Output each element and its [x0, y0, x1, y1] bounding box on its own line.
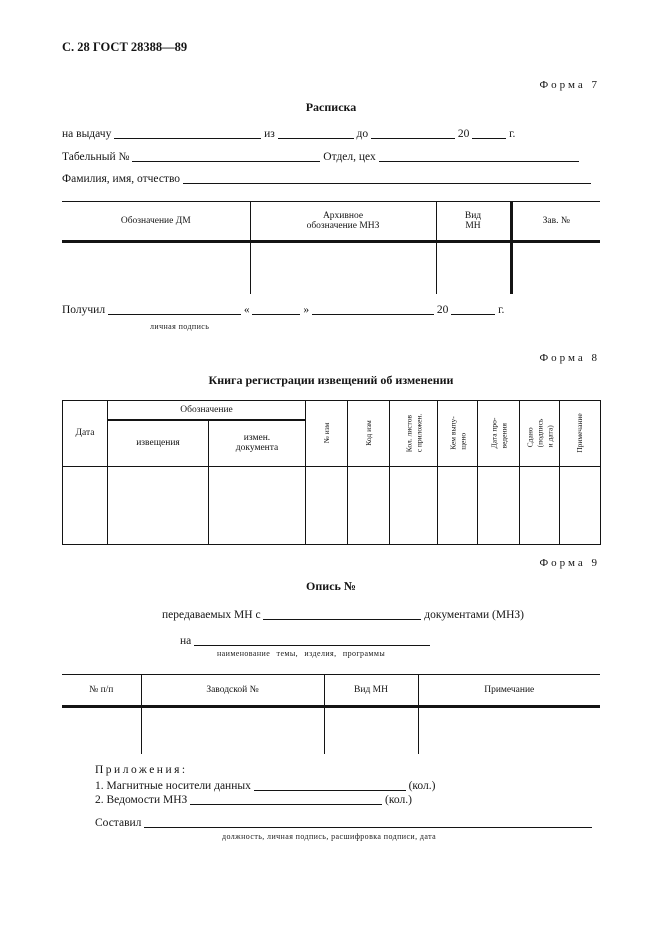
form9-transfer-line: передаваемых МН с документами (МНЗ) [162, 607, 600, 627]
empty-cell [324, 706, 418, 754]
form9-inventory-table: № п/п Заводской № Вид МН Примечание [62, 674, 600, 755]
empty-cell [511, 242, 600, 294]
page-content: С. 28 ГОСТ 28388—89 Форма 7 Расписка на … [62, 40, 600, 841]
issue-label: на выдачу [62, 128, 111, 140]
attachment-item-2: 2. Ведомости МНЗ (кол.) [95, 792, 600, 806]
col-header-date-done: Дата про- ведения [478, 400, 520, 466]
full-name-blank [183, 173, 591, 184]
received-year-prefix: 20 [437, 304, 449, 316]
transfer-suffix: документами (МНЗ) [424, 609, 524, 621]
issue-year-prefix: 20 [458, 128, 470, 140]
receipt-table-header-row: Обозначение ДМ Архивное обозначение МНЗ … [62, 202, 600, 242]
attachment-2-qty: (кол.) [385, 794, 412, 806]
col-header-archive-designation: Архивное обозначение МНЗ [250, 202, 436, 242]
col-header-change-code: Код изм [348, 400, 390, 466]
attachment-1-blank [254, 780, 406, 791]
empty-cell [436, 242, 511, 294]
col-header-date: Дата [63, 400, 108, 466]
form7-title: Расписка [62, 100, 600, 115]
form9-subject-line: на [180, 633, 600, 649]
form8-change-log-table: Дата Обозначение № изм Код изм Кол. лист… [62, 400, 601, 545]
change-log-empty-row [63, 466, 601, 544]
issue-year-blank [472, 128, 506, 139]
received-signature-blank [108, 304, 241, 315]
attachment-1-qty: (кол.) [409, 780, 436, 792]
col-header-designation-group: Обозначение [108, 400, 306, 420]
form7-label: Форма 7 [62, 79, 600, 91]
inventory-table-empty-row [62, 706, 600, 754]
received-label: Получил [62, 304, 105, 316]
received-year-blank [451, 304, 495, 315]
attachments-title: Приложения: [95, 764, 600, 778]
col-header-dm-designation: Обозначение ДМ [62, 202, 250, 242]
empty-cell [108, 466, 209, 544]
personnel-no-label: Табельный № [62, 151, 130, 163]
attachment-1-number: 1. [95, 780, 104, 792]
issue-to-label: до [357, 128, 369, 140]
attachment-1-text: Магнитные носители данных [107, 780, 251, 792]
attachment-item-1: 1. Магнитные носители данных (кол.) [95, 778, 600, 792]
subject-prefix: на [180, 635, 191, 647]
empty-cell [141, 706, 324, 754]
form7-issue-line: на выдачу из до 20 г. [62, 126, 600, 146]
form9-title: Опись № [62, 579, 600, 594]
empty-cell [390, 466, 438, 544]
col-header-change-no: № изм [306, 400, 348, 466]
attachment-2-blank [190, 794, 382, 805]
form7-receipt-table: Обозначение ДМ Архивное обозначение МНЗ … [62, 201, 600, 294]
empty-cell [209, 466, 306, 544]
full-name-label: Фамилия, имя, отчество [62, 173, 180, 185]
col-header-factory-no: Заводской № [141, 674, 324, 706]
empty-cell [250, 242, 436, 294]
attachment-2-text: Ведомости МНЗ [107, 794, 188, 806]
composed-label: Составил [95, 817, 141, 829]
col-header-item-no: № п/п [62, 674, 141, 706]
scanned-document-page: С. 28 ГОСТ 28388—89 Форма 7 Расписка на … [0, 0, 661, 936]
col-header-note: Примечание [418, 674, 600, 706]
form9-label: Форма 9 [62, 557, 600, 569]
col-header-handed-over: Сдано (подпись и дата) [520, 400, 560, 466]
composed-line: Составил [95, 815, 600, 832]
col-header-sheet-count: Кол. листов с приложен. [390, 400, 438, 466]
col-header-issued-by: Кем выпу- щено [438, 400, 478, 466]
attachments-block: Приложения: 1. Магнитные носители данных… [95, 764, 600, 806]
form7-name-line: Фамилия, имя, отчество [62, 171, 600, 191]
transfer-prefix: передаваемых МН с [162, 609, 261, 621]
col-header-notice-designation: извещения [108, 420, 209, 466]
received-year-suffix: г. [498, 304, 504, 316]
subject-blank [194, 635, 430, 646]
issue-blank [114, 128, 261, 139]
col-header-changed-doc-designation: измен. документа [209, 420, 306, 466]
month-blank [312, 304, 434, 315]
empty-cell [418, 706, 600, 754]
col-header-mn-kind: Вид МН [436, 202, 511, 242]
col-header-note: Примечание [560, 400, 601, 466]
inventory-table-header-row: № п/п Заводской № Вид МН Примечание [62, 674, 600, 706]
issue-from-blank [278, 128, 354, 139]
day-blank [252, 304, 300, 315]
personnel-no-blank [132, 151, 320, 162]
change-log-header-row-1: Дата Обозначение № изм Код изм Кол. лист… [63, 400, 601, 420]
quote-close: » [303, 304, 309, 316]
col-header-serial-no: Зав. № [511, 202, 600, 242]
quote-open: « [244, 304, 250, 316]
transfer-blank [263, 609, 421, 620]
empty-cell [62, 706, 141, 754]
form7-personnel-line: Табельный № Отдел, цех [62, 149, 600, 169]
form7-received-line: Получил « » 20 г. [62, 302, 600, 322]
composed-blank [144, 817, 592, 828]
subject-caption: наименование темы, изделия, программы [217, 649, 600, 661]
empty-cell [62, 242, 250, 294]
empty-cell [478, 466, 520, 544]
form8-label: Форма 8 [62, 352, 600, 364]
col-header-mn-kind: Вид МН [324, 674, 418, 706]
empty-cell [438, 466, 478, 544]
empty-cell [520, 466, 560, 544]
page-header: С. 28 ГОСТ 28388—89 [62, 40, 600, 55]
empty-cell [348, 466, 390, 544]
empty-cell [63, 466, 108, 544]
attachment-2-number: 2. [95, 794, 104, 806]
department-label: Отдел, цех [323, 151, 375, 163]
issue-to-blank [371, 128, 455, 139]
composed-caption: должность, личная подпись, расшифровка п… [222, 832, 600, 841]
department-blank [379, 151, 579, 162]
empty-cell [560, 466, 601, 544]
receipt-table-empty-row [62, 242, 600, 294]
form8-title: Книга регистрации извещений об изменении [62, 373, 600, 388]
issue-year-suffix: г. [509, 128, 515, 140]
issue-from-label: из [264, 128, 275, 140]
empty-cell [306, 466, 348, 544]
personal-signature-caption: личная подпись [150, 322, 600, 334]
